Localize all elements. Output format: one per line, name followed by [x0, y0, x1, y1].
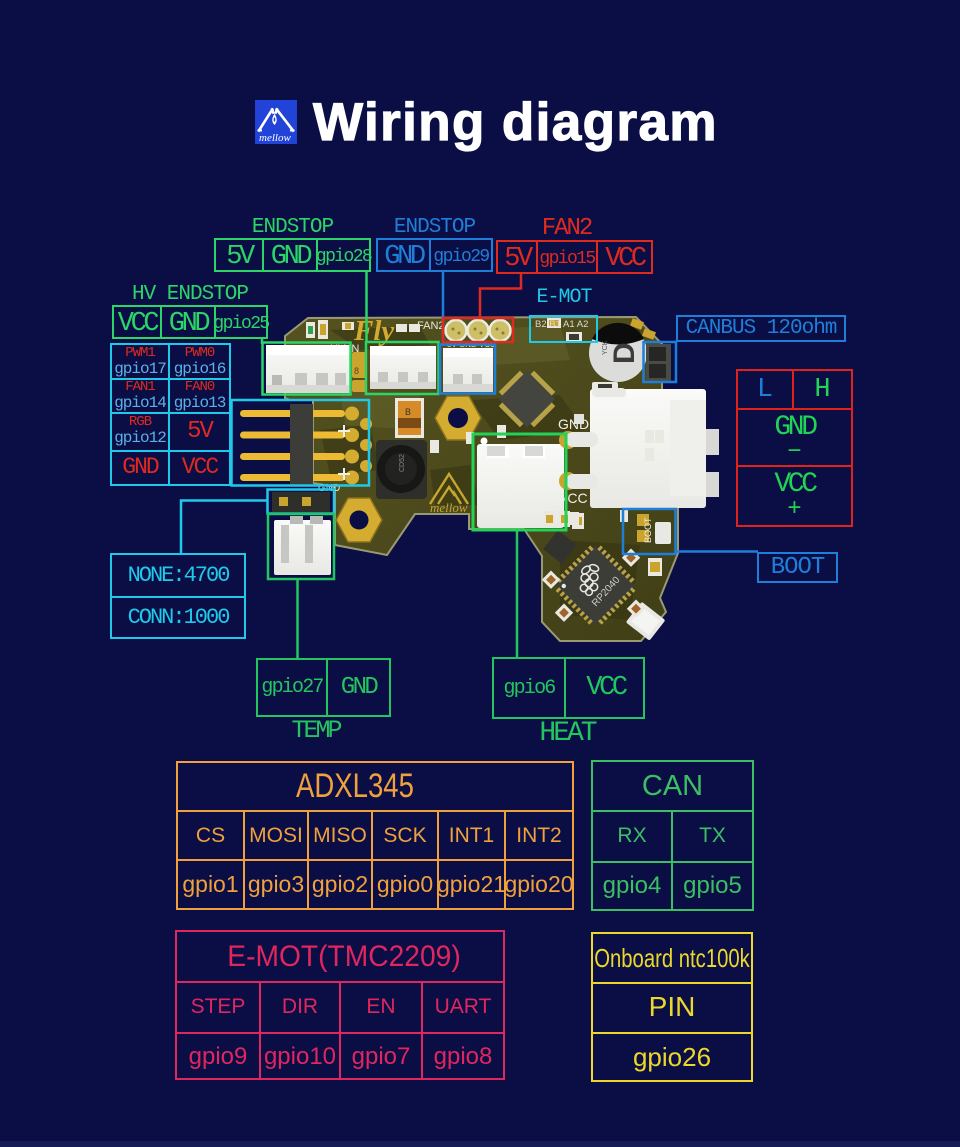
svg-text:YCK: YCK — [602, 340, 609, 355]
svg-text:mellow: mellow — [259, 132, 291, 144]
svg-text:GND: GND — [558, 416, 589, 432]
svg-text:B: B — [405, 407, 411, 417]
svg-text:CD52: CD52 — [399, 454, 406, 472]
svg-text:8: 8 — [354, 366, 359, 376]
svg-text:mellow: mellow — [430, 500, 468, 515]
svg-text:FAN2: FAN2 — [417, 320, 445, 332]
svg-text:BOOT: BOOT — [643, 517, 653, 543]
svg-text:D: D — [608, 342, 641, 364]
